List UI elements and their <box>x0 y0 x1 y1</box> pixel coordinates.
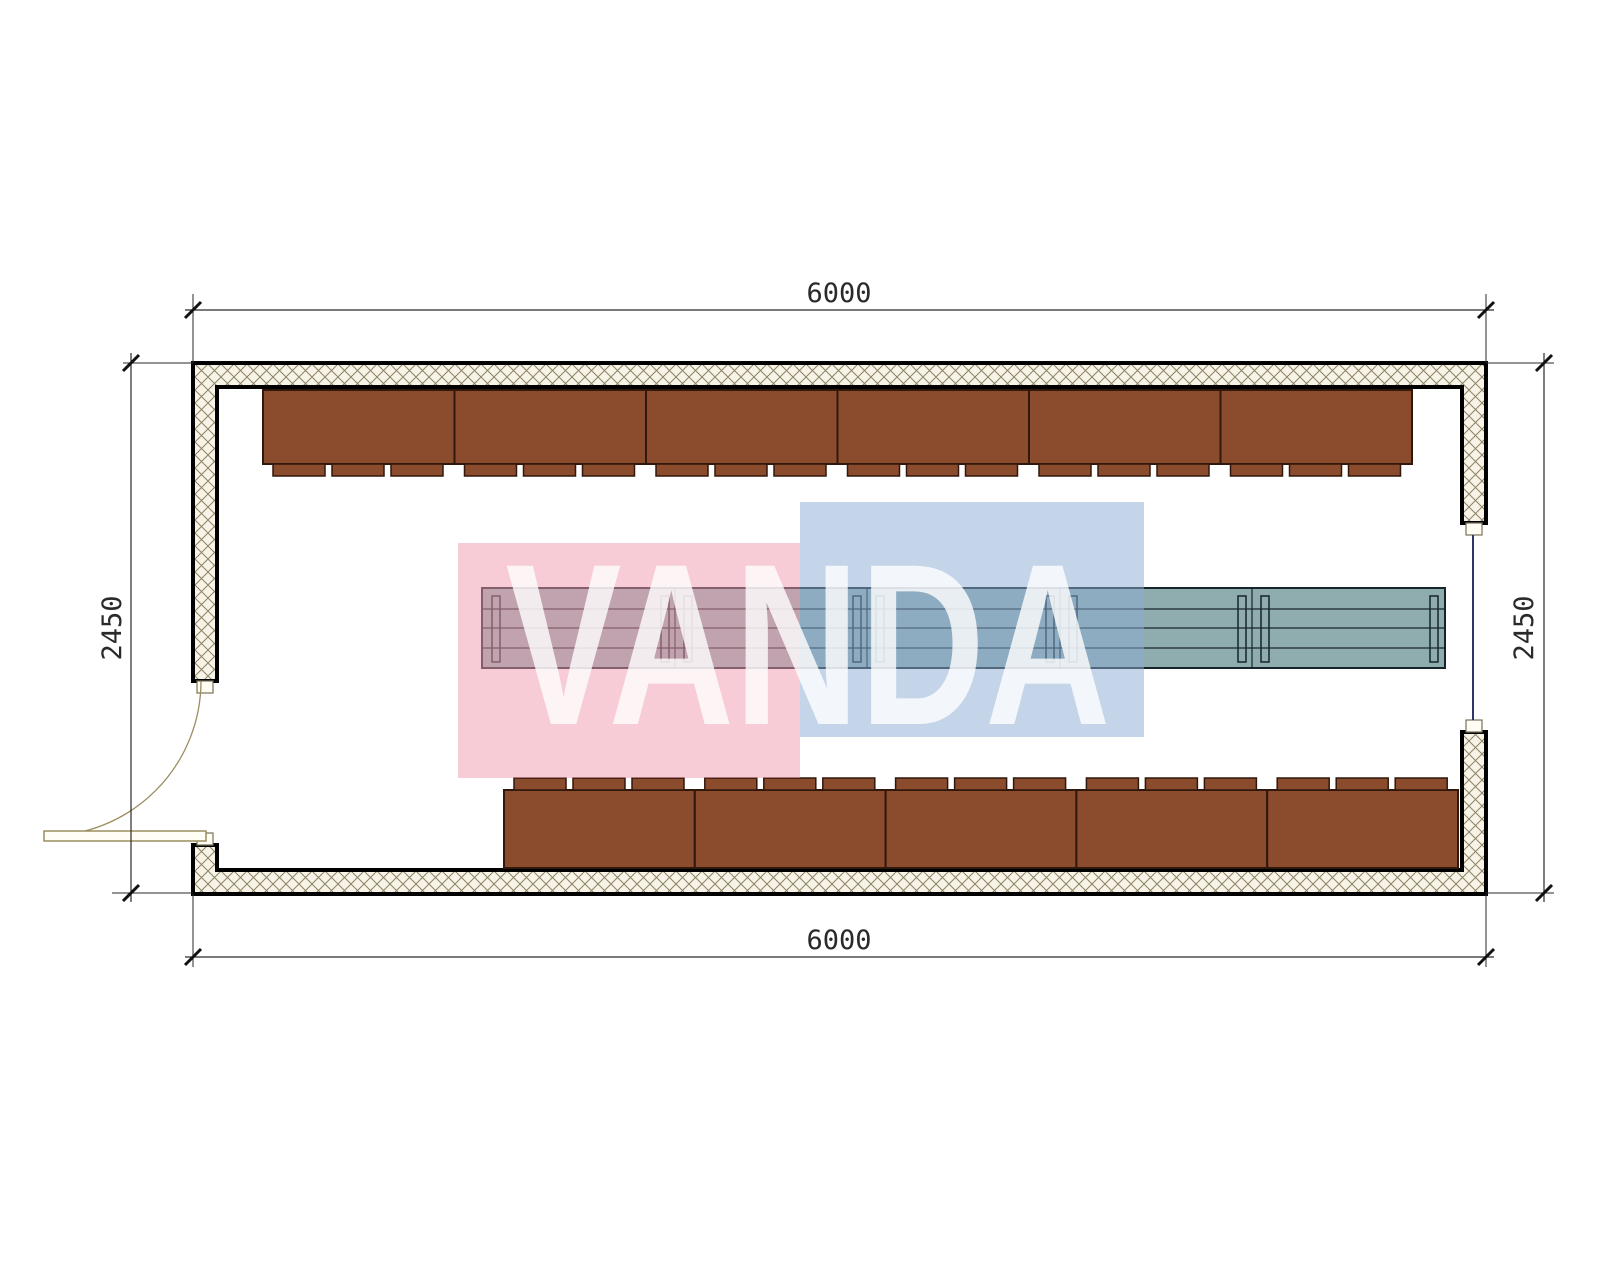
dimension-top: 6000 <box>185 278 1494 363</box>
bench-foot <box>823 778 875 790</box>
door-leaf <box>44 831 206 841</box>
bench-seat <box>1029 390 1221 464</box>
window-jamb-top <box>1466 523 1482 535</box>
bench-seat <box>838 390 1030 464</box>
bench-foot <box>465 464 517 476</box>
bench-row-bottom <box>504 778 1458 868</box>
bench-row-top <box>263 390 1412 476</box>
bench-seat <box>263 390 455 464</box>
bench-foot <box>896 778 948 790</box>
window-jamb-bottom <box>1466 720 1482 732</box>
bench-foot <box>774 464 826 476</box>
door-jamb-top <box>197 681 213 693</box>
bench-foot <box>1098 464 1150 476</box>
bench-foot <box>332 464 384 476</box>
bench-foot <box>955 778 1007 790</box>
dim-label-top: 6000 <box>806 278 871 309</box>
bench-foot <box>1290 464 1342 476</box>
door-swing-arc <box>46 681 201 836</box>
bench-foot <box>907 464 959 476</box>
bench-foot <box>1204 778 1256 790</box>
bench-foot <box>514 778 566 790</box>
bench-foot <box>1014 778 1066 790</box>
bench-seat <box>646 390 838 464</box>
dimension-bottom: 6000 <box>185 894 1494 967</box>
door <box>44 681 213 845</box>
bench-foot <box>1039 464 1091 476</box>
bench-foot <box>632 778 684 790</box>
bench-foot <box>524 464 576 476</box>
bench-foot <box>1145 778 1197 790</box>
bench-seat <box>1267 790 1458 868</box>
bench-foot <box>715 464 767 476</box>
bench-foot <box>966 464 1018 476</box>
bench-foot <box>764 778 816 790</box>
bench-foot <box>1395 778 1447 790</box>
bench-foot <box>391 464 443 476</box>
bench-foot <box>583 464 635 476</box>
bench-foot <box>273 464 325 476</box>
bench-seat <box>886 790 1077 868</box>
dim-label-left: 2450 <box>97 595 128 660</box>
bench-seat <box>1221 390 1413 464</box>
bench-foot <box>1231 464 1283 476</box>
bench-foot <box>705 778 757 790</box>
bench-foot <box>656 464 708 476</box>
bench-foot <box>1277 778 1329 790</box>
bench-foot <box>1349 464 1401 476</box>
dimension-left: 2450 <box>97 353 193 902</box>
watermark: VANDA <box>458 502 1144 778</box>
watermark-text: VANDA <box>506 516 1111 773</box>
floor-plan-canvas: 6000 6000 2450 2450 VANDA <box>0 0 1600 1280</box>
bench-foot <box>573 778 625 790</box>
bench-foot <box>1157 464 1209 476</box>
bench-foot <box>1086 778 1138 790</box>
floor-plan-drawing: 6000 6000 2450 2450 VANDA <box>0 0 1600 1280</box>
bench-seat <box>695 790 886 868</box>
bench-seat <box>455 390 647 464</box>
bench-seat <box>504 790 695 868</box>
bench-foot <box>1336 778 1388 790</box>
bench-seat <box>1076 790 1267 868</box>
bench-foot <box>848 464 900 476</box>
dim-label-right: 2450 <box>1509 595 1540 660</box>
dim-label-bottom: 6000 <box>806 925 871 956</box>
window <box>1466 523 1482 732</box>
dimension-right: 2450 <box>1486 353 1554 902</box>
